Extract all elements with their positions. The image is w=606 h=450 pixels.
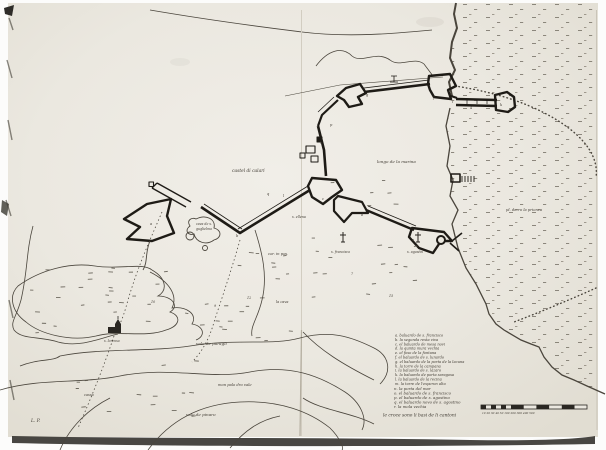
- paper-right-edge: [597, 10, 598, 430]
- label-vale-pinaro: vale de pinaro: [186, 412, 216, 417]
- figure: 15: [389, 294, 393, 298]
- legend-item: d. la quinta mura vechia: [395, 347, 439, 351]
- legend-item: i. la baluardo de s. lazaro: [395, 369, 442, 373]
- mark-i: i: [452, 100, 453, 104]
- legend-item: l. la baluardo de la recina: [395, 378, 442, 382]
- label-vale-paragli: vale de paragli: [196, 341, 228, 346]
- legend-note: le croce sono li basi de li cantoni: [383, 414, 457, 419]
- figure: 9: [214, 304, 216, 308]
- legend-item: e. el foso de la fontana: [395, 351, 436, 355]
- legend-item: b. la segonda resta viva: [395, 338, 438, 342]
- label-longo-marina: longo de la marina: [377, 159, 416, 164]
- paper-bottom-shadow: [12, 436, 595, 446]
- legend-item: c. el baluardo de mesa novi: [395, 342, 445, 346]
- label-cava-line1: cava de s.: [196, 222, 212, 226]
- mark-h: h: [320, 141, 322, 145]
- paper-stain: [170, 58, 190, 66]
- label-s-francisco: s. francisco: [331, 250, 350, 254]
- map-photo: castel di calari longo de la marina pl. …: [0, 0, 606, 450]
- map-drawing: castel di calari longo de la marina pl. …: [0, 0, 606, 450]
- round-tower: [437, 236, 445, 244]
- figure: 10: [151, 300, 155, 304]
- label-corner-initials: L. P.: [30, 419, 41, 424]
- legend-item: k. la baluardo de porta saragosa: [395, 373, 454, 377]
- label-la-cava: la cava: [276, 300, 288, 304]
- figure: 4: [469, 106, 472, 110]
- mark-c: c: [322, 197, 324, 201]
- label-s-lorenso: s. lorenso: [104, 339, 120, 343]
- label-prionca: pl. dorro la prionca: [506, 208, 542, 212]
- mark-l: l: [283, 194, 284, 198]
- paper-edge-blotch: [1, 200, 9, 216]
- legend-item: g. el baluardo de la porta de la lacuna: [395, 360, 464, 364]
- figure: 12: [247, 296, 251, 300]
- legend-item: r. la mola vechia: [394, 404, 427, 409]
- mark-e: e: [412, 238, 414, 242]
- label-cassa: cassa: [84, 393, 94, 397]
- label-s-agostin: s. agostin: [407, 250, 423, 254]
- legend-item: h. la torre de la campana: [395, 364, 441, 368]
- legend-item: a. baluardo de s. francisco: [395, 334, 444, 338]
- legend-item: f. el baluardo de s. lunardo: [394, 356, 445, 360]
- mark-k: k: [500, 103, 502, 107]
- paper-stain: [416, 17, 444, 27]
- mark-a: a: [150, 222, 152, 226]
- label-cava-line2: guglielmo: [196, 227, 212, 231]
- label-mon-palo: mon palo dro vale: [218, 383, 252, 387]
- label-s-ellena: s. ellena: [292, 215, 306, 219]
- label-castel-di-calari: castel di calari: [232, 169, 265, 174]
- scale-bar-ticks: 10 20 30 40 50 100 200 300 400 500: [482, 411, 535, 415]
